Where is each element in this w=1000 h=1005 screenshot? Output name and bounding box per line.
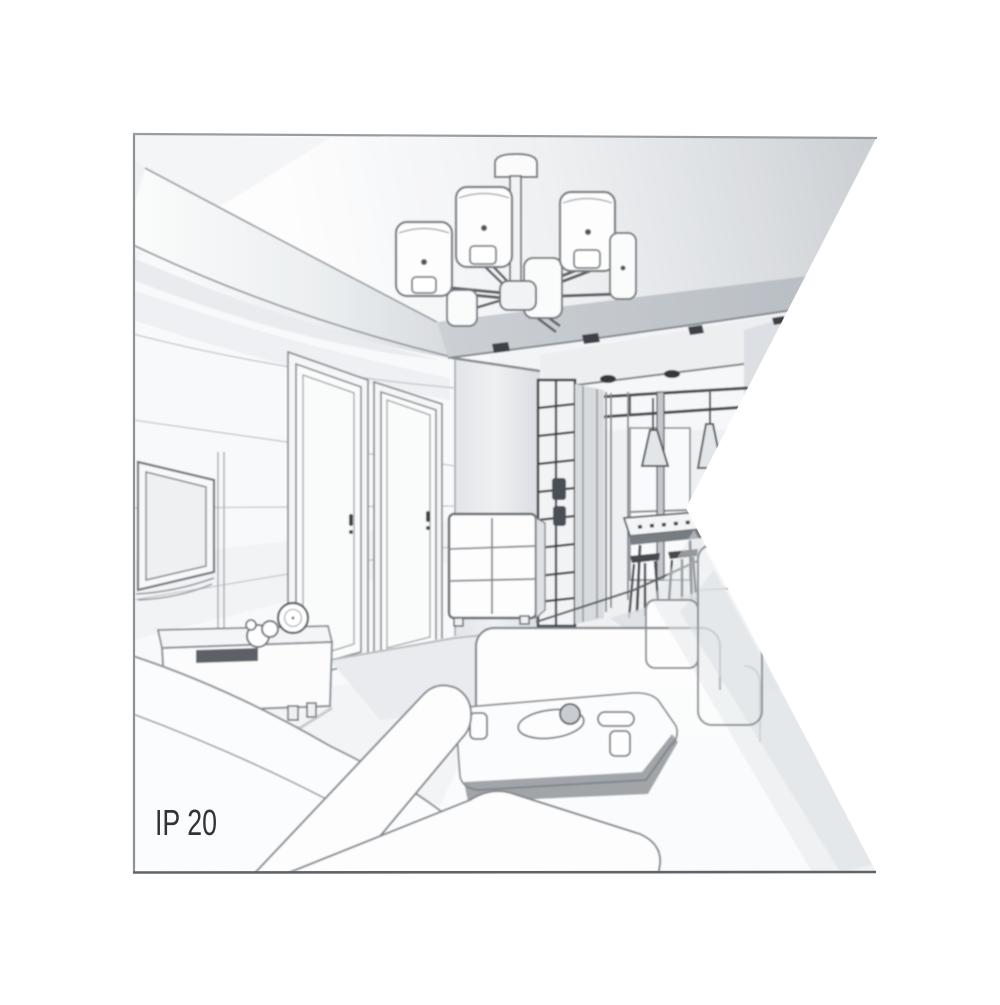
svg-text:IP 20: IP 20 [155,802,217,843]
